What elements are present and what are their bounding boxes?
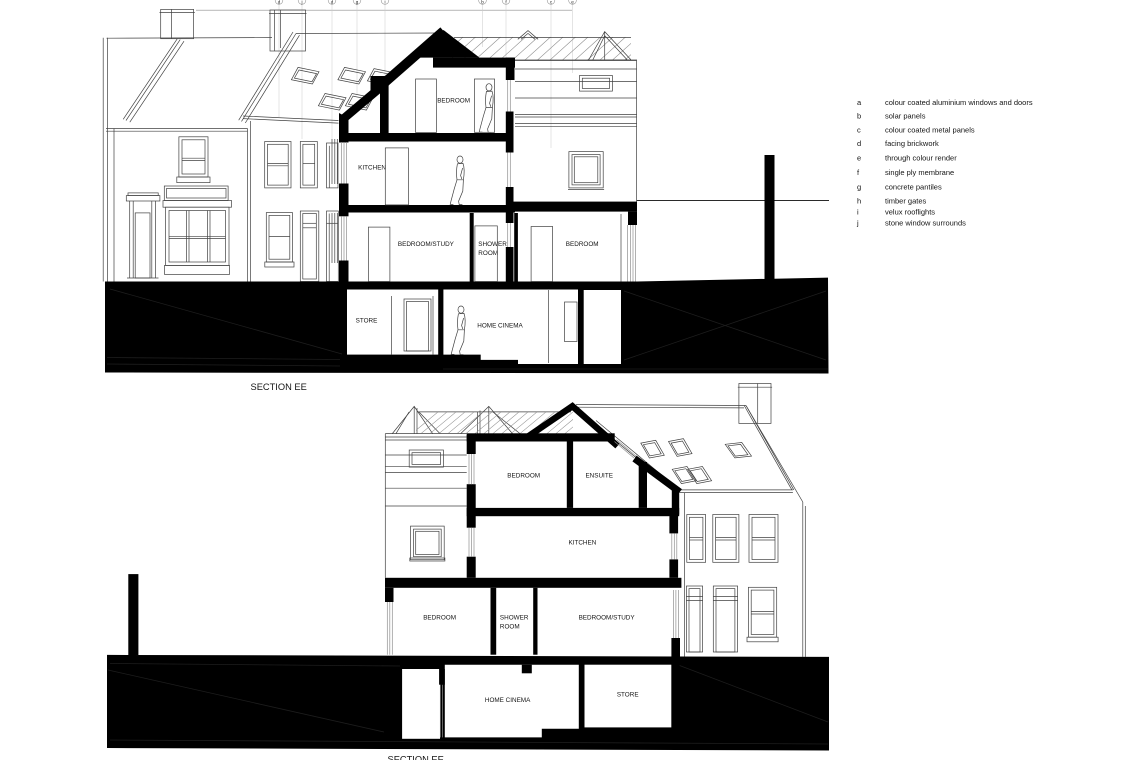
svg-text:STORE: STORE: [617, 692, 639, 699]
svg-text:SECTION EE: SECTION EE: [251, 382, 307, 392]
svg-text:e: e: [571, 0, 574, 5]
svg-text:HOME CINEMA: HOME CINEMA: [485, 697, 531, 704]
svg-text:ROOM: ROOM: [478, 250, 498, 257]
svg-text:c: c: [857, 125, 861, 134]
svg-text:d: d: [331, 0, 334, 5]
svg-text:stone window surrounds: stone window surrounds: [885, 219, 966, 228]
svg-text:solar panels: solar panels: [885, 111, 926, 120]
svg-text:b: b: [481, 0, 484, 5]
svg-text:d: d: [857, 139, 861, 148]
svg-text:HOME CINEMA: HOME CINEMA: [477, 323, 523, 330]
svg-text:ENSUITE: ENSUITE: [585, 473, 613, 480]
svg-text:BEDROOM: BEDROOM: [437, 98, 470, 105]
svg-text:KITCHEN: KITCHEN: [568, 540, 596, 547]
svg-text:SHOWER: SHOWER: [478, 241, 507, 248]
svg-text:SECTION EE: SECTION EE: [388, 755, 444, 760]
svg-text:e: e: [857, 153, 861, 162]
svg-text:single ply membrane: single ply membrane: [885, 168, 954, 177]
svg-text:h: h: [857, 196, 861, 205]
svg-text:facing brickwork: facing brickwork: [885, 139, 939, 148]
svg-text:KITCHEN: KITCHEN: [358, 164, 386, 171]
svg-text:BEDROOM/STUDY: BEDROOM/STUDY: [579, 615, 636, 622]
svg-text:d: d: [278, 0, 281, 5]
svg-text:SHOWER: SHOWER: [500, 615, 529, 622]
svg-text:BEDROOM/STUDY: BEDROOM/STUDY: [398, 241, 455, 248]
svg-text:through colour render: through colour render: [885, 153, 957, 162]
svg-text:i: i: [384, 0, 385, 5]
svg-text:ROOM: ROOM: [500, 624, 520, 631]
svg-text:timber gates: timber gates: [885, 196, 927, 205]
svg-text:BEDROOM: BEDROOM: [566, 241, 599, 248]
svg-text:concrete pantiles: concrete pantiles: [885, 182, 942, 191]
svg-text:BEDROOM: BEDROOM: [423, 615, 456, 622]
svg-text:velux rooflights: velux rooflights: [885, 207, 935, 216]
svg-text:g: g: [857, 182, 861, 191]
svg-text:g: g: [356, 0, 359, 5]
svg-text:colour coated aluminium window: colour coated aluminium windows and door…: [885, 98, 1033, 107]
svg-text:BEDROOM: BEDROOM: [507, 473, 540, 480]
svg-text:b: b: [857, 111, 861, 120]
svg-text:j: j: [300, 0, 302, 5]
svg-text:j: j: [856, 219, 859, 228]
svg-text:STORE: STORE: [356, 318, 378, 325]
svg-text:colour coated metal panels: colour coated metal panels: [885, 125, 975, 134]
